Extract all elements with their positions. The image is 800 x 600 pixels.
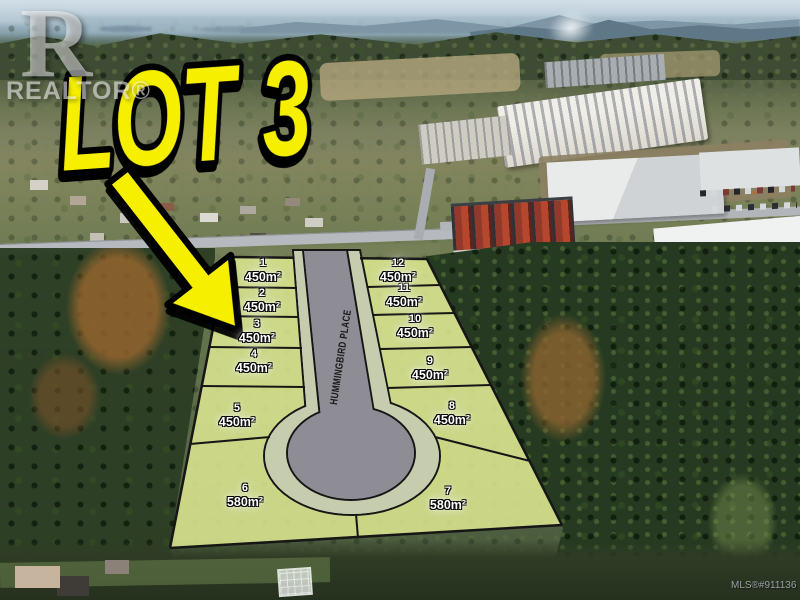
- lot-number: 1: [245, 257, 281, 270]
- lot-area: 450m²: [245, 270, 281, 285]
- lot-label-7: 7 580m²: [430, 485, 466, 513]
- lot-label-8: 8 450m²: [434, 400, 470, 428]
- lot-area: 450m²: [386, 295, 422, 310]
- lot-area: 450m²: [244, 300, 280, 315]
- house-roofs: [15, 558, 145, 600]
- realtor-watermark: R REALTOR®: [6, 0, 151, 106]
- lot-number: 7: [430, 485, 466, 498]
- lot-label-3: 3 450m²: [239, 318, 275, 346]
- lot-area: 450m²: [239, 331, 275, 346]
- lot-label-12: 12 450m²: [380, 257, 416, 285]
- lot-number: 5: [219, 402, 255, 415]
- realtor-logo-r: R: [6, 0, 151, 85]
- lot-area: 450m²: [380, 270, 416, 285]
- mls-number: MLS®#911136: [731, 580, 796, 591]
- lot-label-9: 9 450m²: [412, 355, 448, 383]
- lot-number: 6: [227, 482, 263, 495]
- lot-number: 8: [434, 400, 470, 413]
- lot-label-10: 10 450m²: [397, 313, 433, 341]
- lot-number: 10: [397, 313, 433, 326]
- greenhouse: [277, 567, 313, 597]
- lot-area: 450m²: [219, 415, 255, 430]
- commercial-roof: [699, 147, 800, 190]
- listing-photo: HUMMINGBIRD PLACE LOT 3 1 450m² 2 450m² …: [0, 0, 800, 600]
- lot-number: 3: [239, 318, 275, 331]
- lot-label-6: 6 580m²: [227, 482, 263, 510]
- lot-area: 450m²: [412, 368, 448, 383]
- lot-area: 450m²: [236, 361, 272, 376]
- lot-area: 450m²: [397, 326, 433, 341]
- lot-number: 9: [412, 355, 448, 368]
- lot-number: 2: [244, 287, 280, 300]
- lot-number: 12: [380, 257, 416, 270]
- lot-label-4: 4 450m²: [236, 348, 272, 376]
- lot-label-1: 1 450m²: [245, 257, 281, 285]
- lot-label-2: 2 450m²: [244, 287, 280, 315]
- lot-label-11: 11 450m²: [386, 282, 422, 310]
- lot-label-5: 5 450m²: [219, 402, 255, 430]
- lot-area: 580m²: [430, 498, 466, 513]
- realtor-logo-text: REALTOR®: [6, 77, 151, 106]
- lot-area: 450m²: [434, 413, 470, 428]
- lot-number: 4: [236, 348, 272, 361]
- lot-area: 580m²: [227, 495, 263, 510]
